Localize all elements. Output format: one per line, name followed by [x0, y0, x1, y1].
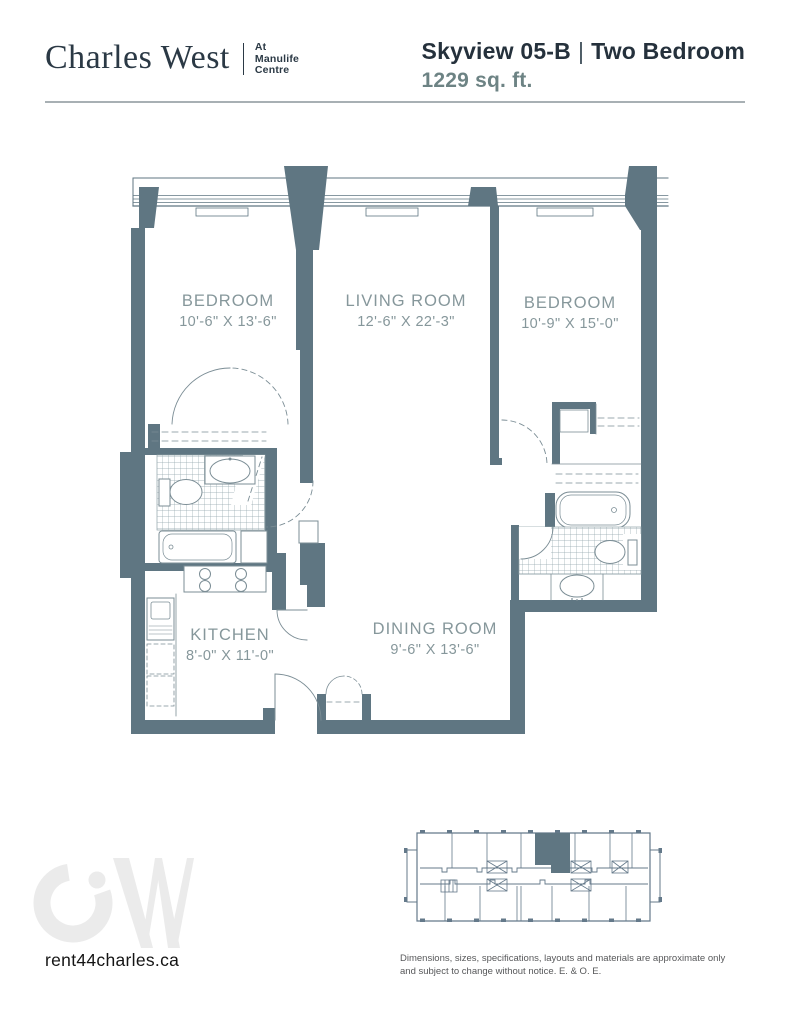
room-label-dining-room: DINING ROOM 9'-6" X 13'-6": [345, 620, 525, 658]
keyplan-elevators: [441, 861, 628, 892]
website-url: rent44charles.ca: [45, 950, 179, 971]
window-sill: [537, 208, 593, 216]
room-name: KITCHEN: [150, 626, 310, 645]
duct: [299, 521, 318, 543]
room-name: BEDROOM: [137, 292, 319, 311]
room-label-bedroom-2: BEDROOM 10'-9" X 15'-0": [482, 294, 658, 332]
bathtub-icon: [159, 531, 236, 563]
keyplan-ticks: [404, 830, 662, 922]
column: [625, 166, 657, 230]
toilet-icon: [170, 480, 202, 505]
door-arc-entry: [275, 674, 321, 720]
bathroom-1: [157, 455, 267, 563]
column: [284, 166, 328, 250]
room-name: LIVING ROOM: [318, 292, 494, 311]
unit-highlight: [535, 833, 570, 873]
room-dimensions: 8'-0" X 11'-0": [150, 648, 310, 664]
toilet-tank: [159, 479, 170, 506]
floor-plan-graphic: [0, 0, 791, 1024]
room-name: DINING ROOM: [345, 620, 525, 639]
room-dimensions: 10'-6" X 13'-6": [137, 314, 319, 330]
disclaimer-line: and subject to change without notice. E.…: [400, 966, 750, 979]
room-label-kitchen: KITCHEN 8'-0" X 11'-0": [150, 626, 310, 664]
window-band: [133, 178, 668, 216]
bathroom-door-gap: [519, 527, 551, 559]
window-sill: [366, 208, 418, 216]
disclaimer-text: Dimensions, sizes, specifications, layou…: [400, 953, 750, 978]
sink-icon: [210, 459, 250, 483]
closet-bedroom-2: [552, 404, 641, 483]
column: [468, 187, 498, 206]
room-label-living-room: LIVING ROOM 12'-6" X 22'-3": [318, 292, 494, 330]
column: [139, 187, 159, 228]
room-label-bedroom-1: BEDROOM 10'-6" X 13'-6": [137, 292, 319, 330]
bathtub-icon: [556, 492, 630, 528]
closet-bedroom-1: [152, 368, 288, 441]
room-name: BEDROOM: [482, 294, 658, 313]
closet-door-arc: [172, 368, 230, 424]
closet-door-arc: [230, 368, 288, 424]
watermark-cw-logo: [33, 858, 194, 948]
stove-icon: [184, 566, 266, 592]
floorplan-page: Charles West At Manulife Centre Skyview …: [0, 0, 791, 1024]
window-sill: [196, 208, 248, 216]
keyplan-corridor: [420, 868, 648, 884]
key-plan: [404, 830, 662, 922]
room-dimensions: 9'-6" X 13'-6": [345, 642, 525, 658]
door-arc-entry-closet: [326, 676, 344, 694]
cabinet-dashed: [147, 676, 174, 706]
disclaimer-line: Dimensions, sizes, specifications, layou…: [400, 953, 750, 966]
door-arc-entry-closet: [344, 676, 362, 694]
watermark-dot: [89, 872, 106, 889]
toilet-icon: [595, 541, 625, 564]
room-dimensions: 10'-9" X 15'-0": [482, 316, 658, 332]
linen-closet: [241, 531, 267, 563]
sink-icon: [560, 575, 594, 597]
door-arc-bedroom-2: [502, 420, 547, 465]
bathroom-2: [519, 492, 641, 601]
toilet-tank: [628, 540, 637, 565]
room-dimensions: 12'-6" X 22'-3": [318, 314, 494, 330]
watermark-w: [113, 858, 194, 948]
